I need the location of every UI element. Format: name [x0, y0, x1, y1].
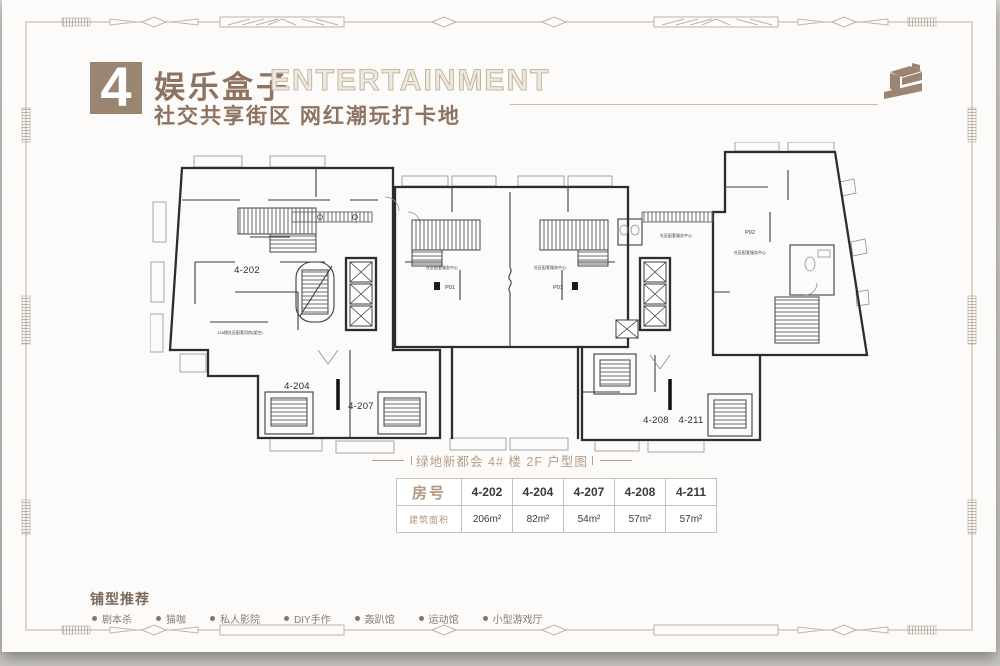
recommend-item-label: 私人影院: [220, 611, 260, 626]
page-title-english: ENTERTAINMENT: [270, 64, 550, 98]
table-row-areas: 建筑面积 206m² 82m² 54m² 57m² 57m²: [397, 506, 717, 533]
unit-info-table: 房号 4-202 4-204 4-207 4-208 4-211 建筑面积 20…: [396, 478, 717, 533]
corridor-note-2: 社区配套服务中心: [534, 264, 566, 270]
parking-label-p01-left: P01: [445, 285, 455, 291]
room-label-4-207: 4-207: [348, 401, 374, 412]
room-number-header: 房号: [397, 479, 462, 506]
recommend-title: 铺型推荐: [90, 589, 150, 609]
caption-left-line: [372, 460, 404, 461]
room-cell: 4-202: [462, 479, 513, 506]
floor-plan: 4-202 4-204 4-207 4-208 4-211 P01 P01 P0…: [150, 142, 870, 457]
elevator-icons: [350, 262, 666, 338]
list-item: 轰趴馆: [355, 611, 395, 626]
list-item: 猫咖: [156, 611, 186, 626]
exterior-walls: [170, 152, 867, 440]
bullet-icon: [483, 616, 488, 621]
room-label-4-211: 4-211: [678, 415, 703, 426]
room-cell: 4-207: [564, 479, 615, 506]
table-row-room-numbers: 房号 4-202 4-204 4-207 4-208 4-211: [397, 479, 717, 506]
section-number: 4: [100, 55, 131, 118]
room-cell: 4-211: [666, 479, 717, 506]
plan-caption: 绿地新都会 4# 楼 2F 户型图: [2, 451, 1000, 470]
building-icon: [876, 62, 932, 114]
left-block-note: 12#楼社区配套用房(架空): [217, 329, 263, 335]
parking-label-p01-right: P01: [553, 285, 563, 291]
brochure-page: 4 娱乐盒子 ENTERTAINMENT 社交共享街区 网红潮玩打卡地: [2, 0, 996, 652]
corridor-note-1: 社区配套服务中心: [426, 264, 458, 270]
bullet-icon: [355, 616, 360, 621]
area-header: 建筑面积: [397, 506, 462, 533]
room-label-4-204: 4-204: [284, 381, 310, 392]
corridor-note-3: 社区配套服务中心: [660, 232, 692, 238]
section-number-badge: 4: [90, 62, 142, 114]
stairs: [238, 208, 819, 436]
bullet-icon: [419, 616, 424, 621]
page-subtitle: 社交共享街区 网红潮玩打卡地: [154, 100, 461, 130]
recommend-item-label: 剧本杀: [102, 611, 132, 626]
recommend-item-label: 轰趴馆: [365, 611, 395, 626]
corridor-note-4: 社区配套服务中心: [734, 249, 766, 255]
bullet-icon: [92, 616, 97, 621]
area-cell: 57m²: [666, 506, 717, 533]
recommend-item-label: 小型游戏厅: [493, 611, 543, 626]
list-item: DIY手作: [284, 611, 331, 626]
list-item: 私人影院: [210, 611, 260, 626]
caption-left-tick: [411, 456, 412, 465]
bullet-icon: [156, 616, 161, 621]
recommend-list: 剧本杀 猫咖 私人影院 DIY手作 轰趴馆 运动馆 小型游戏厅: [92, 611, 543, 626]
parking-label-p02: P02: [745, 230, 755, 236]
recommend-item-label: 猫咖: [166, 611, 186, 626]
recommend-item-label: 运动馆: [429, 611, 459, 626]
area-cell: 82m²: [513, 506, 564, 533]
caption-right-line: [600, 460, 632, 461]
list-item: 剧本杀: [92, 611, 132, 626]
room-cell: 4-204: [513, 479, 564, 506]
area-cell: 57m²: [615, 506, 666, 533]
caption-text: 绿地新都会 4# 楼 2F 户型图: [416, 455, 588, 469]
list-item: 小型游戏厅: [483, 611, 543, 626]
glazed-strips: [292, 212, 713, 222]
caption-right-tick: [592, 456, 593, 465]
bullet-icon: [210, 616, 215, 621]
area-cell: 54m²: [564, 506, 615, 533]
bullet-icon: [284, 616, 289, 621]
room-cell: 4-208: [615, 479, 666, 506]
room-label-4-208: 4-208: [643, 415, 669, 426]
room-label-4-202: 4-202: [234, 265, 260, 276]
recommend-item-label: DIY手作: [294, 611, 331, 626]
area-cell: 206m²: [462, 506, 513, 533]
list-item: 运动馆: [419, 611, 459, 626]
header-divider-line: [510, 104, 878, 105]
